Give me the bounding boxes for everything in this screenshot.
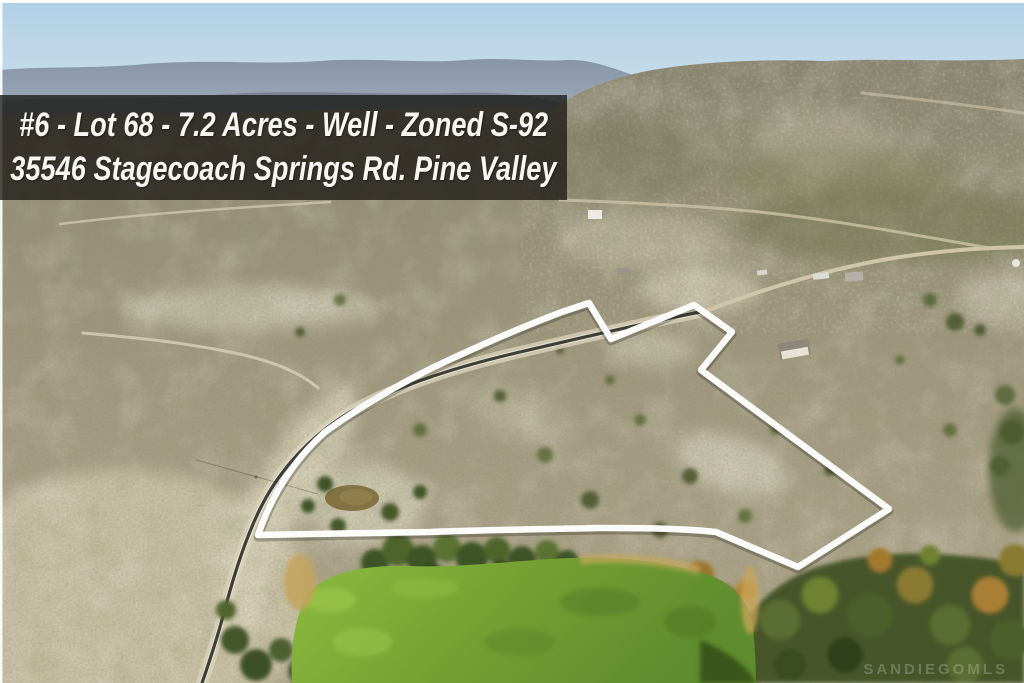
white-outbuilding	[588, 210, 602, 219]
algae-pond	[284, 554, 759, 683]
mls-watermark: SANDIEGOMLS	[863, 661, 1008, 678]
gray-house	[845, 271, 864, 282]
aerial-listing-photo: #6 - Lot 68 - 7.2 Acres - Well - Zoned S…	[0, 0, 1024, 683]
listing-info-banner: #6 - Lot 68 - 7.2 Acres - Well - Zoned S…	[0, 95, 567, 200]
photo-border-top	[0, 0, 1024, 3]
banner-address: 35546 Stagecoach Springs Rd. Pine Valley	[10, 148, 556, 191]
banner-lot-details: #6 - Lot 68 - 7.2 Acres - Well - Zoned S…	[19, 104, 548, 147]
shed	[617, 268, 630, 275]
water-tank	[1012, 259, 1020, 267]
